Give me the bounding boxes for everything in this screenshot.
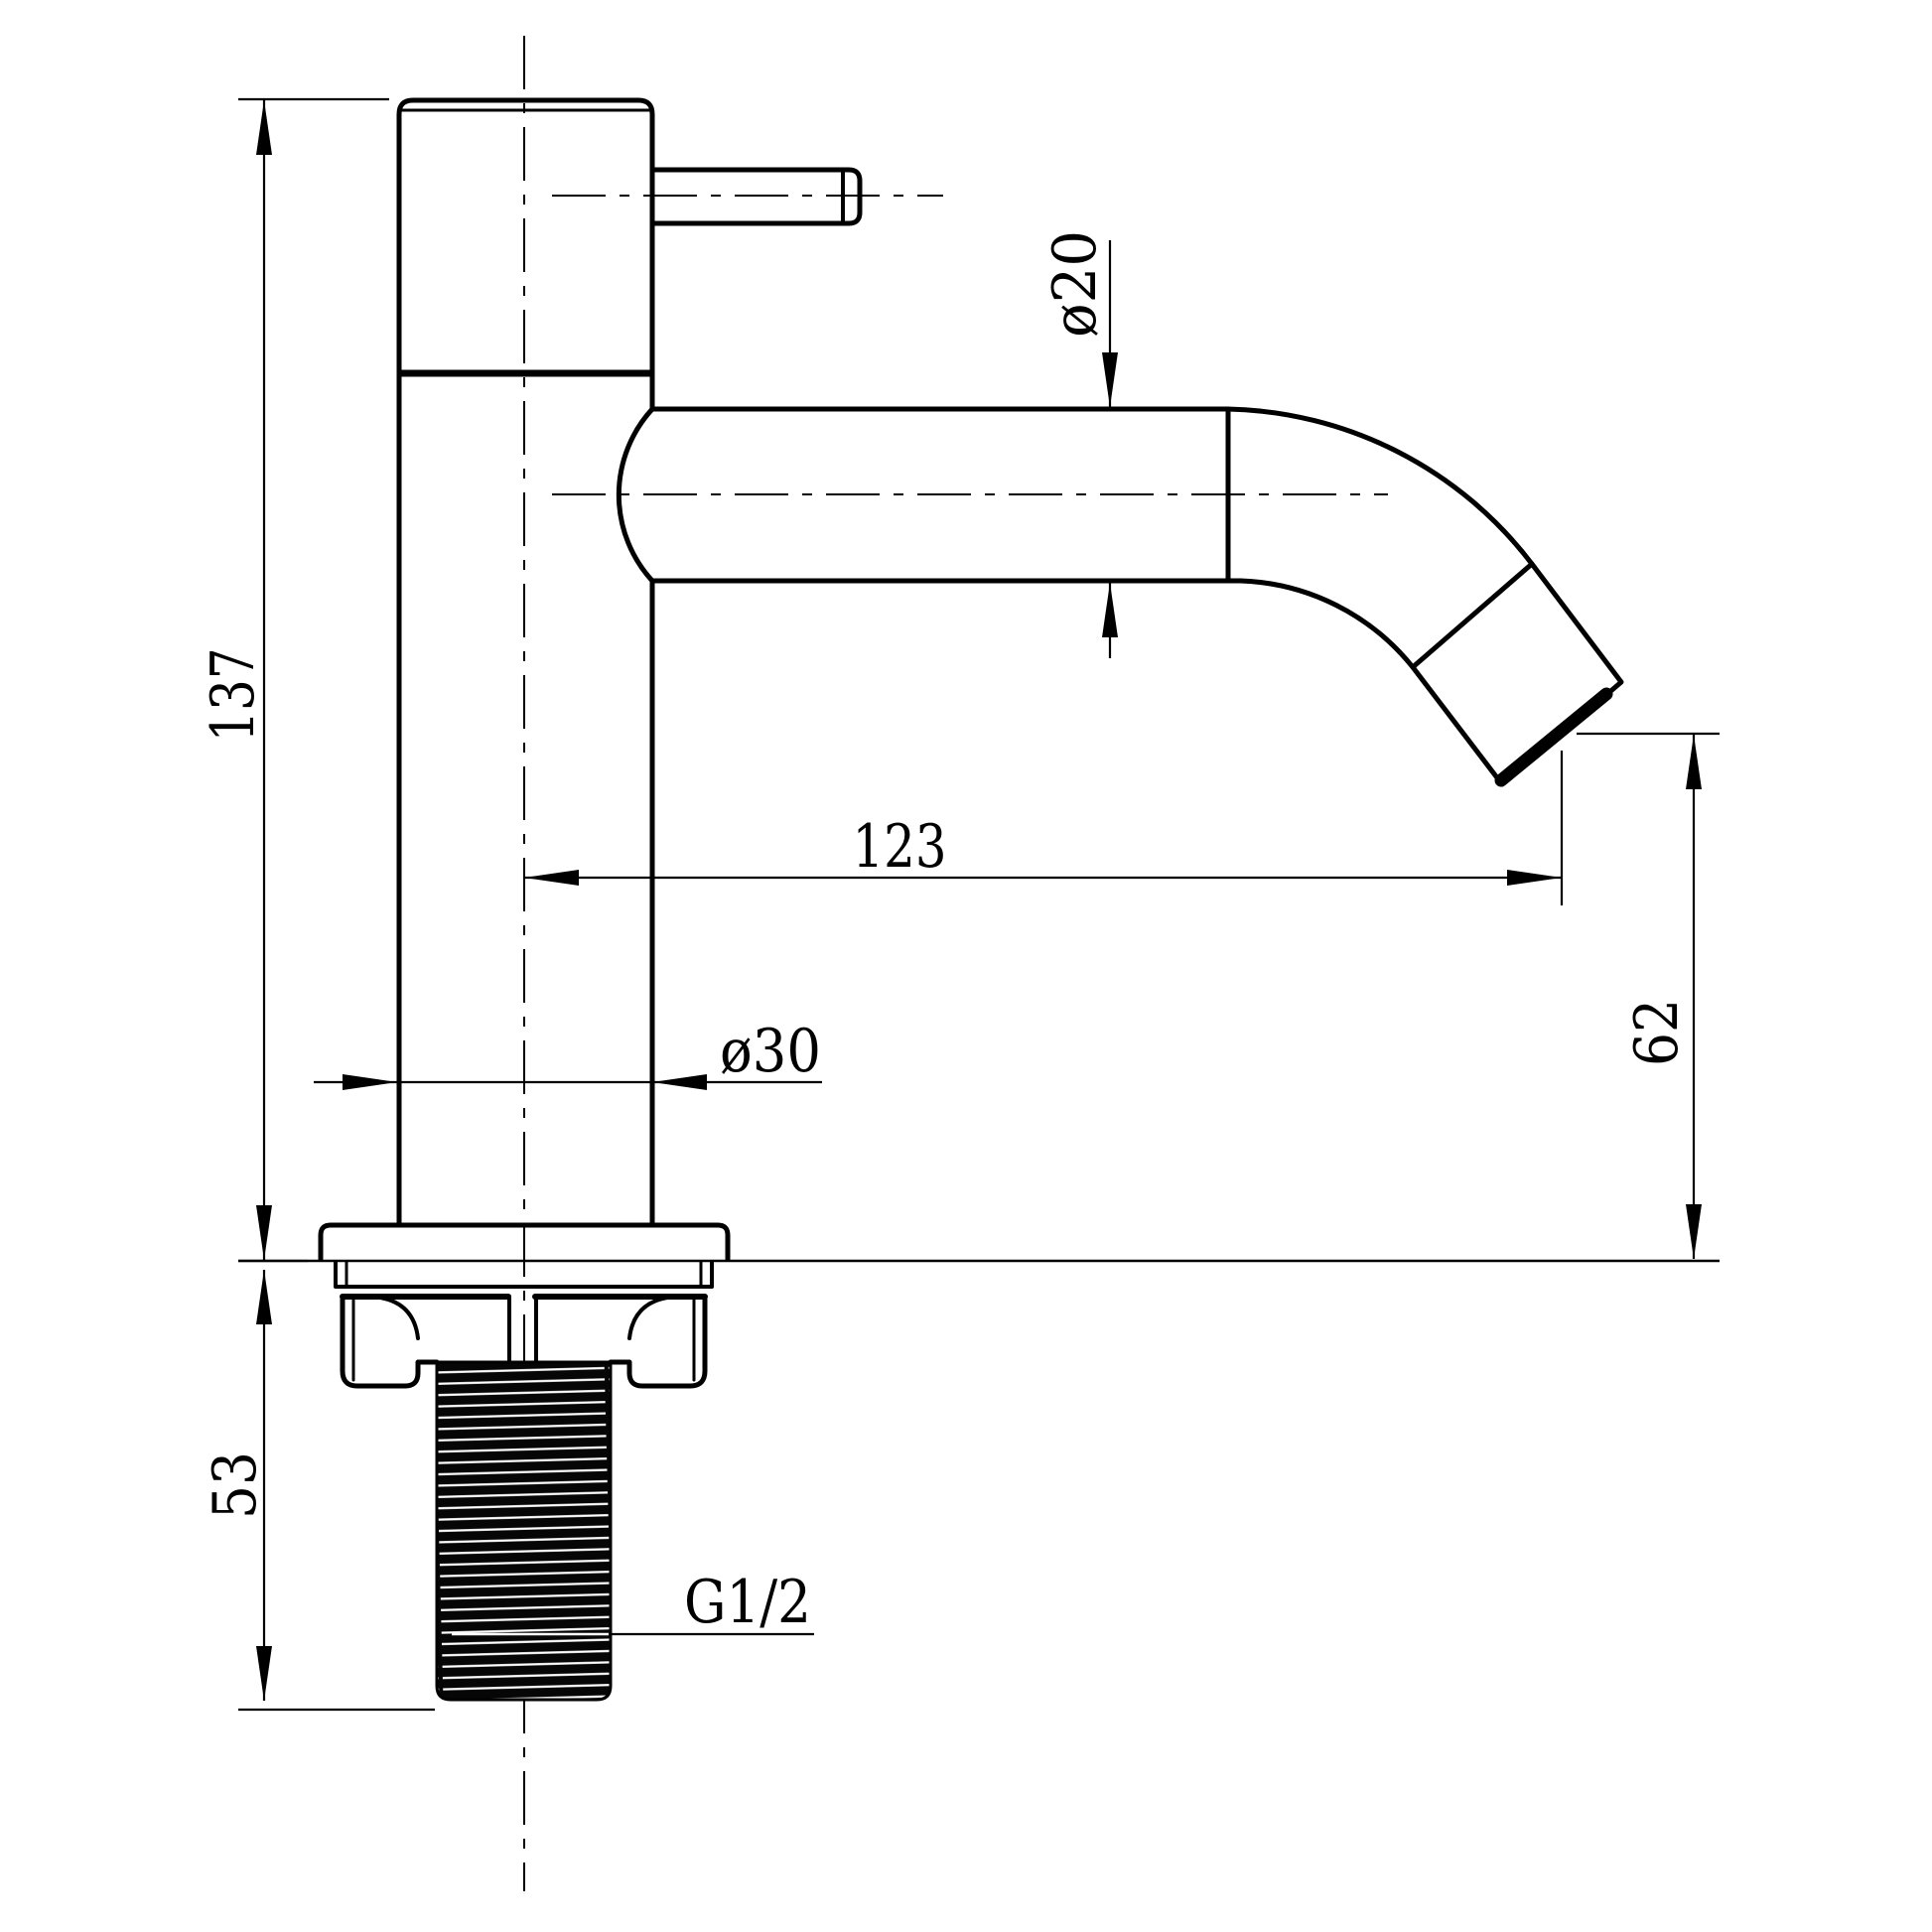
dimension-137-label: 137 [199,648,268,743]
thread-shank [437,1362,611,1700]
spout-bottom-line [652,581,1413,667]
aerator-outlet-band [1501,694,1606,780]
dimension-53-label: 53 [201,1451,270,1519]
arrowhead-left [524,870,579,886]
thread-spec-callout: G1/2 [611,1568,814,1637]
arrowhead-down [256,1205,272,1260]
dimension-53: 53 [201,1270,435,1710]
spout-top-line [652,409,1532,564]
technical-drawing-page: 137 53 ø20 ø30 123 62 [0,0,1932,1932]
arrowhead-down [256,1646,272,1701]
mounting-flange [238,1225,1720,1261]
arrowhead-up [1102,583,1118,637]
arrowhead-right [1507,870,1562,886]
dimension-123-label: 123 [853,812,947,882]
arrowhead-right [343,1074,397,1090]
dimension-dia20-label: ø20 [1040,230,1110,338]
arrowhead-left [652,1074,707,1090]
faucet-technical-drawing: 137 53 ø20 ø30 123 62 [0,0,1932,1932]
arrowhead-down [1686,1204,1702,1259]
nut-right-pocket-arc [629,1298,667,1338]
arrowhead-up [256,1270,272,1324]
arrowhead-up [256,100,272,155]
nut-right-lobe [611,1297,705,1386]
faucet-body [399,100,652,1224]
dimension-123: 123 [524,751,1562,905]
nut-left-lobe [343,1297,437,1386]
aerator-outline [1413,564,1621,784]
dimension-62-label: 62 [1622,999,1692,1066]
dimension-dia30-label: ø30 [720,1017,821,1086]
aerator-tip [1413,564,1621,784]
dimension-dia30: ø30 [314,1017,822,1090]
spout [652,409,1532,667]
dimension-62: 62 [1577,734,1720,1259]
dimension-dia20: ø20 [1040,230,1118,658]
arrowhead-down [1102,352,1118,407]
arrowhead-up [1686,735,1702,789]
nut-left-pocket-arc [380,1298,418,1338]
thread-spec-label: G1/2 [684,1568,811,1637]
threaded-tailpiece [437,1362,611,1700]
body-outline [399,100,652,1224]
